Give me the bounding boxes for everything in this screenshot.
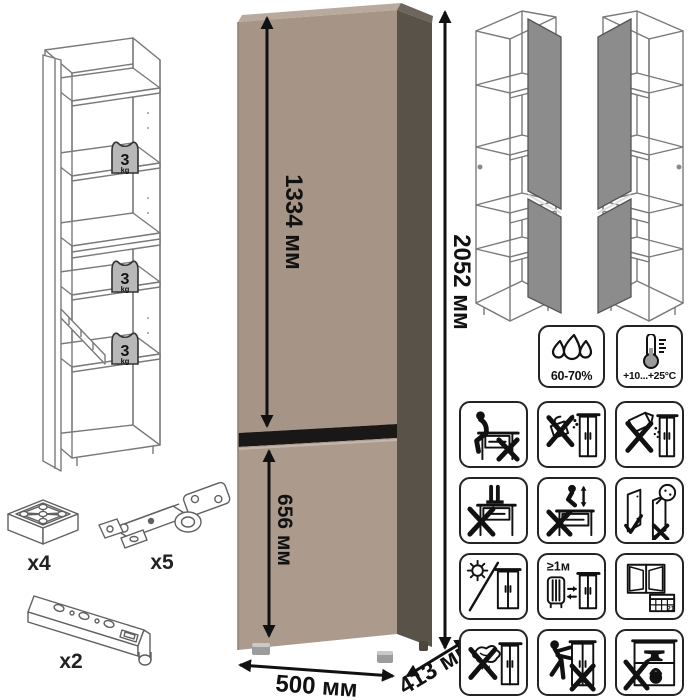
- no-pushing-drag-icon: [537, 629, 606, 696]
- dim-lower-door: 656 мм: [273, 494, 296, 566]
- lower-door: [238, 438, 397, 650]
- calendar-day: 21: [667, 605, 675, 612]
- side-panel: [397, 10, 432, 647]
- gray-doors: [528, 19, 561, 313]
- thermometer-icon: [628, 334, 672, 370]
- no-pouring-liquids-icon: [537, 401, 606, 468]
- avoid-direct-sunlight-icon: [459, 553, 528, 620]
- humidity-label: 60-70%: [551, 370, 592, 383]
- climate-icons: 60-70% +10...+25°C: [538, 325, 683, 388]
- no-heavy-load-icon: [615, 629, 684, 696]
- cabinet-variant-mirrored: [598, 11, 683, 321]
- dim-width: 500 мм: [275, 670, 359, 700]
- upper-door: [238, 10, 397, 433]
- temperature-label: +10...+25°C: [623, 371, 676, 382]
- wardrobe-render: 1334 мм 656 мм 2052 мм 500 мм 413 мм: [228, 0, 480, 700]
- weight-icon: 3 kg: [112, 333, 138, 365]
- regular-ventilation-icon: 21: [615, 553, 684, 620]
- hinge-drawing: [93, 478, 233, 558]
- no-jumping-icon: [537, 477, 606, 544]
- keep-1m-from-heat-icon: ≥1м: [537, 553, 606, 620]
- no-powder-spill-icon: [615, 401, 684, 468]
- foot-count-label: x4: [16, 552, 62, 576]
- care-icon-grid: ≥1м: [459, 401, 684, 696]
- dim-upper-door: 1334 мм: [280, 174, 307, 270]
- temperature-icon: +10...+25°C: [616, 325, 683, 388]
- no-sitting-icon: [459, 401, 528, 468]
- svg-text:kg: kg: [121, 357, 130, 366]
- cabinet-variant: [476, 11, 561, 321]
- foot-glide-drawing: [2, 486, 86, 558]
- svg-text:kg: kg: [121, 285, 130, 294]
- no-standing-icon: [459, 477, 528, 544]
- no-wet-cloth-icon: [459, 629, 528, 696]
- heat-distance-label: ≥1м: [546, 559, 569, 573]
- weight-unit: kg: [121, 166, 130, 175]
- door-orientation-drawings: [470, 5, 689, 335]
- weight-icon: 3 kg: [112, 261, 138, 293]
- hinge-count-label: x5: [139, 551, 185, 575]
- water-drops-icon: [550, 333, 594, 369]
- wardrobe-infographic: 3 kg 3 kg 3 kg: [0, 0, 689, 700]
- rail-count-label: x2: [48, 650, 94, 674]
- weight-icon: 3 kg: [112, 142, 138, 174]
- humidity-icon: 60-70%: [538, 325, 605, 388]
- open-door-panel: [43, 55, 105, 471]
- open-cabinet-line-drawing: 3 kg 3 kg 3 kg: [5, 33, 230, 488]
- cabinet-carcass: [45, 38, 160, 466]
- knob: [478, 165, 483, 170]
- door-adjustment-icon: [615, 477, 684, 544]
